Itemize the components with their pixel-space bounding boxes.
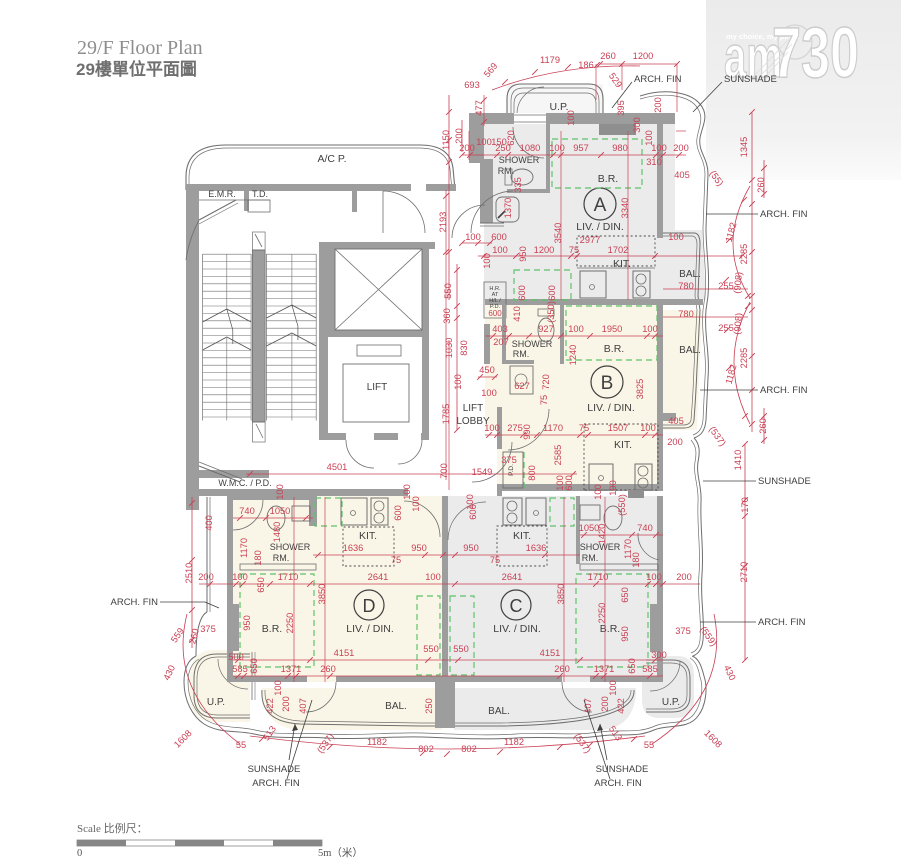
svg-text:100: 100 <box>642 324 658 334</box>
svg-text:410: 410 <box>512 306 522 322</box>
svg-text:BAL.: BAL. <box>679 269 701 280</box>
svg-text:100: 100 <box>566 110 576 126</box>
svg-text:100: 100 <box>411 496 421 512</box>
svg-text:650: 650 <box>249 658 259 674</box>
svg-text:650: 650 <box>256 577 266 593</box>
svg-text:950: 950 <box>411 543 427 553</box>
svg-text:1420: 1420 <box>597 524 607 545</box>
svg-text:780: 780 <box>678 281 694 291</box>
svg-text:1507: 1507 <box>608 423 629 433</box>
svg-text:4151: 4151 <box>334 648 355 658</box>
svg-text:75: 75 <box>490 555 500 565</box>
svg-text:950: 950 <box>620 626 630 642</box>
svg-text:255: 255 <box>718 281 734 291</box>
svg-text:260: 260 <box>600 51 616 61</box>
svg-text:310: 310 <box>646 157 662 167</box>
svg-text:275: 275 <box>507 423 523 433</box>
svg-text:1549: 1549 <box>472 467 493 477</box>
svg-text:1371: 1371 <box>281 664 302 674</box>
svg-text:1636: 1636 <box>526 543 547 553</box>
svg-text:Scale 比例尺：: Scale 比例尺： <box>77 821 148 835</box>
svg-text:200: 200 <box>676 572 692 582</box>
svg-text:BAL.: BAL. <box>385 701 407 712</box>
svg-text:3340: 3340 <box>620 198 630 219</box>
svg-text:LIV. / DIN.: LIV. / DIN. <box>576 221 623 233</box>
svg-text:300: 300 <box>632 117 642 133</box>
svg-text:55: 55 <box>644 740 654 750</box>
svg-text:600: 600 <box>393 505 403 521</box>
svg-text:100: 100 <box>668 232 684 242</box>
svg-text:740: 740 <box>239 506 255 516</box>
svg-text:T.D.: T.D. <box>252 189 268 199</box>
svg-text:250: 250 <box>424 698 434 714</box>
svg-text:SUNSHADE: SUNSHADE <box>758 476 811 487</box>
svg-text:180: 180 <box>631 552 641 568</box>
svg-text:300: 300 <box>651 650 667 660</box>
svg-text:550: 550 <box>443 283 453 299</box>
svg-text:1200: 1200 <box>534 245 555 255</box>
svg-text:2250: 2250 <box>285 613 295 634</box>
svg-text:260: 260 <box>320 664 336 674</box>
svg-text:1200: 1200 <box>633 51 654 61</box>
svg-text:SHOWER: SHOWER <box>270 542 311 552</box>
svg-text:1371: 1371 <box>594 664 615 674</box>
svg-text:407: 407 <box>298 698 308 714</box>
svg-text:207: 207 <box>493 337 509 347</box>
svg-text:SHOWER: SHOWER <box>512 339 553 349</box>
svg-text:KIT.: KIT. <box>359 530 377 542</box>
svg-text:100: 100 <box>593 484 603 500</box>
svg-text:100: 100 <box>492 245 508 255</box>
svg-text:200: 200 <box>673 143 689 153</box>
svg-text:KIT.: KIT. <box>513 530 531 542</box>
svg-text:100: 100 <box>568 324 584 334</box>
svg-text:650: 650 <box>627 658 637 674</box>
svg-text:600: 600 <box>491 232 507 242</box>
svg-text:990: 990 <box>522 424 532 440</box>
svg-text:SUNSHADE: SUNSHADE <box>596 764 649 775</box>
svg-text:1480: 1480 <box>272 522 282 543</box>
svg-text:100: 100 <box>465 232 481 242</box>
svg-text:LIV. / DIN.: LIV. / DIN. <box>346 623 393 635</box>
svg-text:ARCH. FIN: ARCH. FIN <box>760 385 808 396</box>
svg-text:600: 600 <box>547 285 557 301</box>
svg-text:100: 100 <box>481 388 497 398</box>
svg-text:100: 100 <box>232 572 248 582</box>
svg-text:B.R.: B.R. <box>262 623 282 635</box>
svg-text:1182: 1182 <box>367 737 387 747</box>
svg-text:1702: 1702 <box>608 245 629 255</box>
svg-text:2250: 2250 <box>597 603 607 624</box>
svg-text:(350): (350) <box>546 301 556 323</box>
svg-text:950: 950 <box>463 543 479 553</box>
svg-text:200: 200 <box>667 437 683 447</box>
svg-text:4501: 4501 <box>327 462 348 472</box>
svg-text:KIT.: KIT. <box>614 439 632 451</box>
svg-text:75: 75 <box>391 555 401 565</box>
svg-text:200: 200 <box>454 128 464 144</box>
svg-text:950: 950 <box>518 246 528 262</box>
svg-text:ARCH. FIN: ARCH. FIN <box>634 74 682 85</box>
svg-text:LIV. / DIN.: LIV. / DIN. <box>493 623 540 635</box>
svg-text:100: 100 <box>465 494 475 510</box>
svg-text:405: 405 <box>668 416 684 426</box>
svg-text:100: 100 <box>640 423 656 433</box>
svg-text:450: 450 <box>479 365 495 375</box>
svg-text:100: 100 <box>646 572 662 582</box>
svg-text:1636: 1636 <box>343 543 364 553</box>
svg-text:B: B <box>601 373 614 394</box>
svg-text:1182: 1182 <box>504 737 524 747</box>
svg-text:180: 180 <box>253 550 263 566</box>
svg-text:(550): (550) <box>617 494 627 516</box>
svg-text:2285: 2285 <box>739 348 749 369</box>
svg-text:1150: 1150 <box>441 130 451 150</box>
svg-text:3825: 3825 <box>635 379 645 400</box>
svg-text:1345: 1345 <box>739 137 749 158</box>
svg-text:B.R.: B.R. <box>604 343 624 355</box>
svg-text:29樓單位平面圖: 29樓單位平面圖 <box>76 59 197 79</box>
svg-text:RM.: RM. <box>513 349 530 359</box>
svg-text:100: 100 <box>644 130 654 146</box>
svg-text:A: A <box>594 195 607 216</box>
svg-text:585: 585 <box>642 664 658 674</box>
svg-text:1950: 1950 <box>602 324 623 334</box>
svg-text:405: 405 <box>674 170 690 180</box>
svg-text:100: 100 <box>549 143 565 153</box>
svg-text:740: 740 <box>637 523 653 533</box>
svg-text:100: 100 <box>482 253 492 269</box>
svg-text:RM.: RM. <box>582 553 599 563</box>
svg-text:650: 650 <box>620 587 630 603</box>
svg-text:700: 700 <box>439 463 449 479</box>
svg-text:100: 100 <box>453 374 463 390</box>
svg-text:ARCH. FIN: ARCH. FIN <box>594 778 642 789</box>
svg-text:260: 260 <box>756 177 766 193</box>
svg-text:200: 200 <box>600 696 610 712</box>
svg-text:ARCH. FIN: ARCH. FIN <box>760 209 808 220</box>
svg-text:422: 422 <box>265 698 275 714</box>
svg-text:29/F Floor Plan: 29/F Floor Plan <box>77 37 203 59</box>
svg-text:100: 100 <box>476 137 492 147</box>
svg-text:75: 75 <box>579 423 589 433</box>
svg-text:1080: 1080 <box>520 143 541 153</box>
svg-text:2510: 2510 <box>184 563 194 584</box>
svg-text:ARCH. FIN: ARCH. FIN <box>111 597 159 608</box>
svg-text:600: 600 <box>564 475 574 491</box>
svg-text:3850: 3850 <box>317 584 327 605</box>
svg-text:2641: 2641 <box>368 572 389 582</box>
svg-text:830: 830 <box>459 340 469 356</box>
svg-text:BAL.: BAL. <box>679 345 701 356</box>
svg-text:395: 395 <box>616 100 626 116</box>
svg-text:1179: 1179 <box>540 55 560 65</box>
svg-text:ARCH. FIN: ARCH. FIN <box>252 778 300 789</box>
svg-text:800: 800 <box>527 465 537 481</box>
svg-text:100: 100 <box>608 480 618 496</box>
svg-text:U.P.: U.P. <box>662 697 680 708</box>
svg-text:693: 693 <box>464 80 480 90</box>
svg-text:980: 980 <box>612 143 628 153</box>
svg-text:200: 200 <box>653 97 663 113</box>
svg-text:SUNSHADE: SUNSHADE <box>724 74 777 85</box>
svg-text:1410: 1410 <box>733 450 743 471</box>
svg-text:3850: 3850 <box>556 584 566 605</box>
svg-text:422: 422 <box>616 698 626 714</box>
svg-text:957: 957 <box>573 143 589 153</box>
svg-text:LIFT: LIFT <box>463 403 484 414</box>
svg-text:403: 403 <box>492 324 508 334</box>
svg-text:ARCH. FIN: ARCH. FIN <box>758 617 806 628</box>
svg-text:375: 375 <box>200 624 216 634</box>
svg-text:E.M.R.: E.M.R. <box>208 189 236 199</box>
svg-text:360: 360 <box>442 308 452 324</box>
svg-text:585: 585 <box>232 664 248 674</box>
svg-text:260: 260 <box>758 418 768 434</box>
svg-text:D: D <box>363 596 376 616</box>
svg-text:100: 100 <box>273 680 283 696</box>
svg-text:1170: 1170 <box>239 538 249 558</box>
svg-text:1785: 1785 <box>441 404 451 425</box>
svg-text:500: 500 <box>228 652 244 662</box>
svg-text:2285: 2285 <box>739 244 749 265</box>
svg-text:1370: 1370 <box>503 198 513 219</box>
svg-text:LIV. / DIN.: LIV. / DIN. <box>587 402 634 414</box>
svg-text:100: 100 <box>608 680 618 696</box>
svg-text:627: 627 <box>514 381 530 391</box>
svg-text:2710: 2710 <box>739 562 749 583</box>
svg-text:200: 200 <box>459 143 475 153</box>
svg-text:620: 620 <box>506 130 516 146</box>
svg-text:927: 927 <box>538 324 554 334</box>
svg-text:LIFT: LIFT <box>367 382 388 393</box>
svg-text:1240: 1240 <box>568 345 578 366</box>
svg-text:335: 335 <box>513 177 523 193</box>
svg-text:2977: 2977 <box>580 235 601 245</box>
svg-text:730: 730 <box>772 14 859 93</box>
svg-text:477: 477 <box>474 100 484 116</box>
svg-text:75: 75 <box>569 245 579 255</box>
svg-text:950: 950 <box>242 615 252 631</box>
svg-text:375: 375 <box>501 455 517 465</box>
svg-text:1710: 1710 <box>278 572 299 582</box>
svg-text:400: 400 <box>204 515 214 531</box>
svg-text:W.M.C. / P.D.: W.M.C. / P.D. <box>218 478 271 488</box>
svg-text:100: 100 <box>275 484 285 500</box>
svg-text:200: 200 <box>281 696 291 712</box>
svg-text:720: 720 <box>541 374 551 390</box>
svg-text:260: 260 <box>554 664 570 674</box>
svg-text:1170: 1170 <box>543 423 563 433</box>
svg-text:2585: 2585 <box>553 445 563 466</box>
svg-text:100: 100 <box>484 423 500 433</box>
svg-text:2193: 2193 <box>438 212 448 233</box>
svg-text:600: 600 <box>517 285 527 301</box>
svg-text:75: 75 <box>539 395 549 405</box>
svg-text:780: 780 <box>678 309 694 319</box>
svg-text:B.R.: B.R. <box>600 623 620 635</box>
svg-text:U.P.: U.P. <box>207 697 225 708</box>
svg-text:1050: 1050 <box>270 506 291 516</box>
svg-text:375: 375 <box>675 626 691 636</box>
svg-text:SUNSHADE: SUNSHADE <box>248 764 301 775</box>
svg-text:550: 550 <box>423 644 439 654</box>
svg-text:100: 100 <box>425 572 441 582</box>
svg-text:550: 550 <box>453 644 469 654</box>
svg-text:RM.: RM. <box>273 553 290 563</box>
svg-text:A/C P.: A/C P. <box>318 153 347 165</box>
svg-text:2641: 2641 <box>502 572 523 582</box>
svg-text:B.R.: B.R. <box>598 173 618 185</box>
svg-text:3540: 3540 <box>553 223 563 244</box>
svg-text:4151: 4151 <box>540 648 561 658</box>
svg-text:200: 200 <box>198 572 214 582</box>
svg-text:802: 802 <box>418 744 434 754</box>
svg-text:600: 600 <box>488 309 502 318</box>
svg-text:C: C <box>510 596 523 616</box>
svg-text:802: 802 <box>461 744 477 754</box>
svg-text:BAL.: BAL. <box>488 706 510 717</box>
svg-text:0: 0 <box>77 848 82 859</box>
svg-text:5m（米）: 5m（米） <box>318 846 363 859</box>
